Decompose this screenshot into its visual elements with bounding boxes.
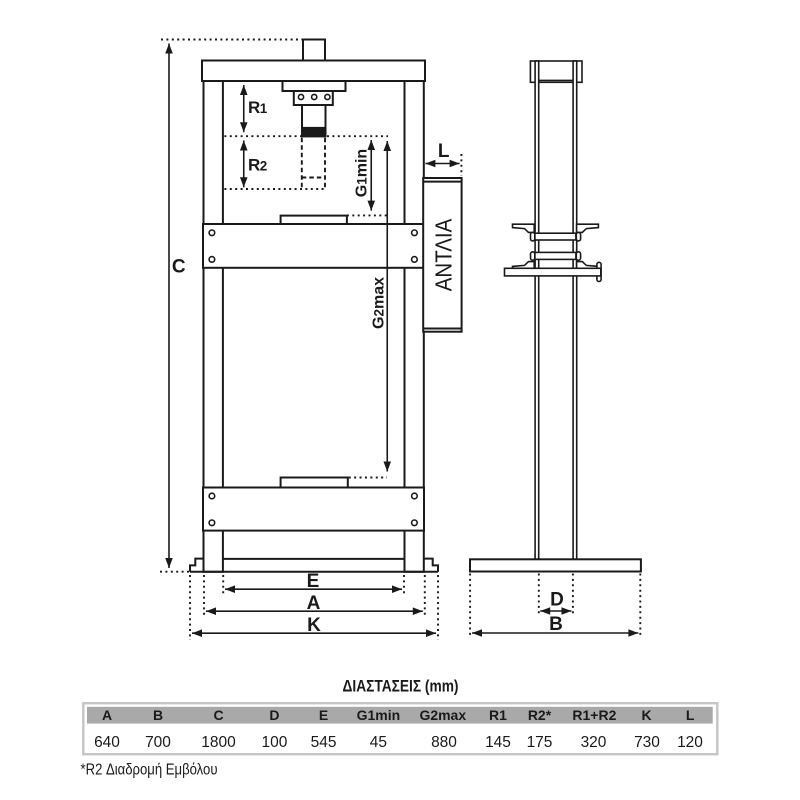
svg-text:1800: 1800 bbox=[201, 734, 236, 751]
svg-text:R: R bbox=[248, 155, 260, 174]
svg-text:G2max: G2max bbox=[371, 277, 388, 329]
svg-text:A: A bbox=[102, 707, 112, 723]
svg-text:K: K bbox=[642, 707, 652, 723]
svg-text:45: 45 bbox=[370, 734, 387, 751]
svg-text:ΔΙΑΣΤΑΣΕΙΣ (mm): ΔΙΑΣΤΑΣΕΙΣ (mm) bbox=[343, 677, 459, 696]
svg-text:B: B bbox=[153, 707, 163, 723]
svg-text:R1: R1 bbox=[489, 707, 507, 723]
svg-text:545: 545 bbox=[311, 734, 337, 751]
svg-text:ΑΝΤΛΙΑ: ΑΝΤΛΙΑ bbox=[431, 218, 457, 291]
svg-text:700: 700 bbox=[145, 734, 171, 751]
svg-text:880: 880 bbox=[431, 734, 457, 751]
svg-text:R2*: R2* bbox=[528, 707, 552, 723]
svg-text:R: R bbox=[248, 98, 260, 117]
svg-text:L: L bbox=[686, 707, 695, 723]
svg-text:B: B bbox=[549, 614, 563, 635]
svg-text:730: 730 bbox=[634, 734, 660, 751]
svg-text:E: E bbox=[319, 707, 328, 723]
svg-text:G1min: G1min bbox=[354, 149, 371, 197]
svg-text:A: A bbox=[307, 593, 321, 614]
svg-text:100: 100 bbox=[261, 734, 287, 751]
svg-text:640: 640 bbox=[94, 734, 120, 751]
svg-text:K: K bbox=[307, 615, 321, 636]
svg-text:G2max: G2max bbox=[419, 707, 466, 723]
svg-text:320: 320 bbox=[581, 734, 607, 751]
svg-text:120: 120 bbox=[677, 734, 703, 751]
svg-text:G1min: G1min bbox=[357, 707, 401, 723]
svg-text:D: D bbox=[269, 707, 279, 723]
svg-text:E: E bbox=[307, 571, 320, 592]
svg-text:R1+R2: R1+R2 bbox=[572, 707, 616, 723]
svg-text:*R2 Διαδρομή Εμβόλου: *R2 Διαδρομή Εμβόλου bbox=[81, 762, 218, 779]
svg-text:L: L bbox=[438, 141, 450, 162]
svg-text:145: 145 bbox=[485, 734, 511, 751]
svg-text:C: C bbox=[213, 707, 223, 723]
svg-text:C: C bbox=[172, 257, 186, 278]
svg-text:D: D bbox=[550, 590, 564, 611]
svg-text:1: 1 bbox=[260, 101, 268, 116]
svg-text:175: 175 bbox=[527, 734, 553, 751]
svg-text:2: 2 bbox=[260, 158, 268, 173]
